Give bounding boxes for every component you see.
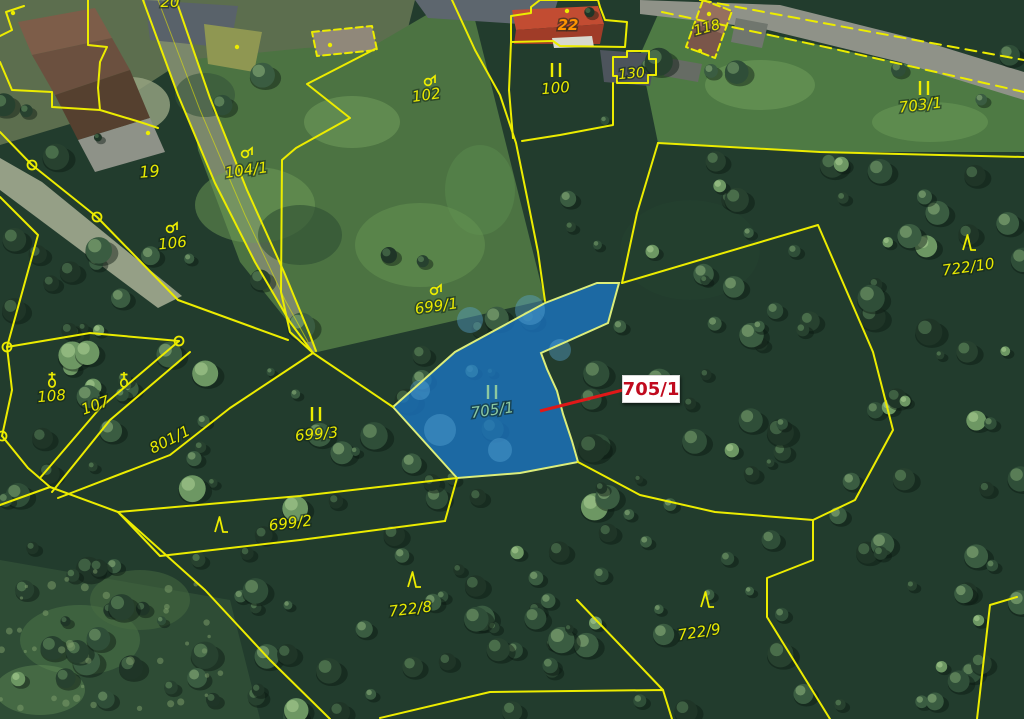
cadastral-map: 192022100102104/1106107108118130703/1699… — [0, 0, 1024, 719]
dot-icon — [146, 131, 150, 135]
dot-icon — [707, 12, 711, 16]
parcel-label-108: 108 — [37, 386, 67, 406]
dot-icon — [328, 43, 332, 47]
dot-icon — [565, 9, 569, 13]
parcel-label-20: 20 — [160, 0, 179, 11]
parcel-label-22: 22 — [558, 16, 579, 34]
parcel-callout[interactable]: 705/1 — [622, 375, 680, 403]
parcel-label-106: 106 — [157, 233, 187, 254]
parcel-label-19: 19 — [139, 161, 161, 182]
dot-icon — [235, 45, 239, 49]
dot-icon — [698, 49, 702, 53]
dot-icon — [11, 11, 15, 15]
parcel-callout-text: 705/1 — [623, 379, 680, 400]
parcel-label-130: 130 — [618, 65, 646, 83]
parcel-label-100: 100 — [541, 78, 571, 98]
aerial-map-canvas[interactable]: 192022100102104/1106107108118130703/1699… — [0, 0, 1024, 719]
parcel-label-699-3: 699/3 — [294, 423, 339, 445]
